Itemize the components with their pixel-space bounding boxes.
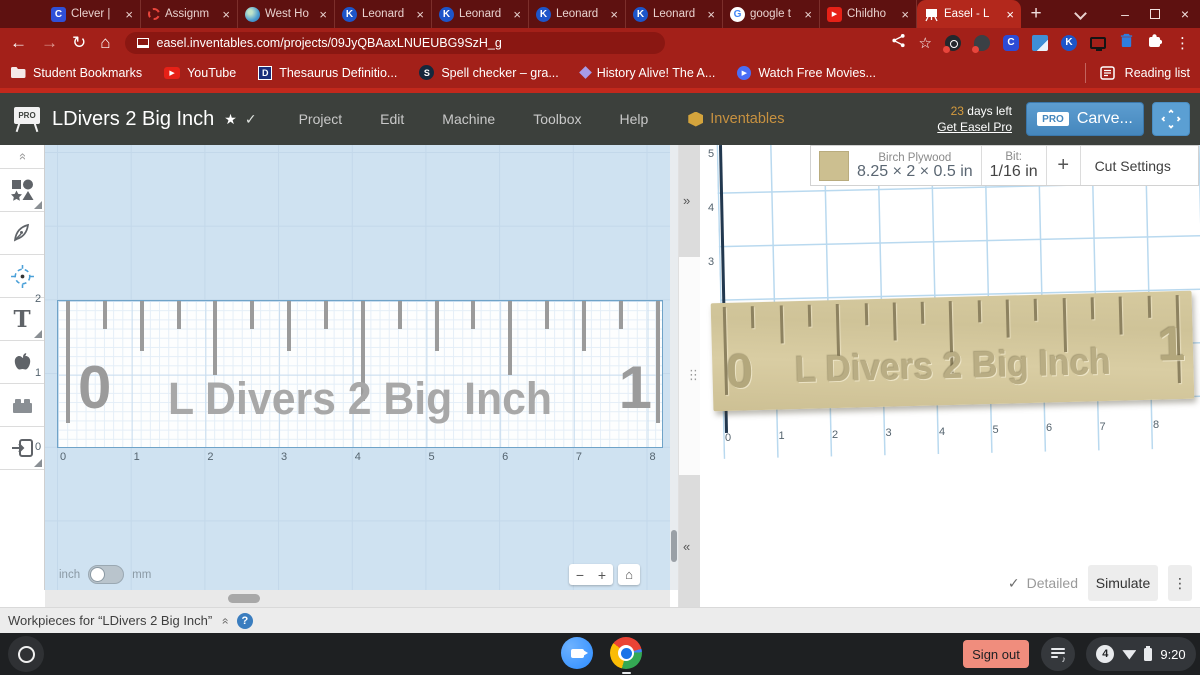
inventables-link[interactable]: Inventables: [688, 111, 784, 127]
jog-machine-button[interactable]: [1152, 102, 1190, 136]
tab-close-icon[interactable]: ×: [416, 7, 424, 22]
trial-info: 23 days left Get Easel Pro: [937, 103, 1012, 135]
reading-list-icon: [1100, 66, 1115, 80]
classroom-favicon-icon: [148, 8, 160, 20]
clever-favicon-icon: C: [51, 7, 66, 22]
tab-close-icon[interactable]: ×: [513, 7, 521, 22]
tab-assignments[interactable]: Assignm ×: [141, 0, 238, 28]
tab-label: Leonard: [653, 8, 702, 20]
tab-close-icon[interactable]: ×: [222, 7, 230, 22]
address-bar[interactable]: easel.inventables.com/projects/09JyQBAax…: [125, 32, 665, 54]
tab-label: google t: [750, 8, 799, 20]
extension-monitor-icon[interactable]: [1090, 37, 1106, 49]
bit-label: Bit:: [1005, 151, 1022, 163]
pen-icon: [11, 222, 33, 244]
project-title[interactable]: LDivers 2 Big Inch: [52, 108, 214, 131]
bookmarks-bar: Student Bookmarks ▶ YouTube D Thesaurus …: [0, 57, 1200, 88]
bookmark-history-alive[interactable]: History Alive! The A...: [581, 66, 716, 80]
inventables-logo-icon: [688, 112, 703, 127]
tab-label: Leonard: [362, 8, 411, 20]
bookmark-youtube[interactable]: ▶ YouTube: [164, 66, 236, 80]
toggle-knob: [90, 567, 105, 582]
tab-clever[interactable]: C Clever | ×: [44, 0, 141, 28]
simulate-button[interactable]: Simulate: [1088, 565, 1158, 601]
help-icon[interactable]: ?: [237, 613, 253, 629]
design-canvas[interactable]: 0 1 L Divers 2 Big Inch 012345678 210 in…: [45, 145, 670, 590]
saved-check-icon: ✓: [245, 111, 257, 128]
trial-days-suffix: days left: [964, 104, 1012, 118]
video-camera-icon: [571, 649, 584, 658]
sparkle-icon: [579, 66, 592, 79]
easel-header: PRO LDivers 2 Big Inch ★ ✓ Project Edit …: [0, 93, 1200, 145]
tab-label: Easel - L: [944, 8, 1001, 20]
text-icon: T: [13, 306, 30, 333]
thesaurus-icon: D: [258, 66, 272, 80]
bookmark-label: Student Bookmarks: [33, 66, 142, 80]
easel-favicon-icon: [924, 7, 939, 22]
url-text: easel.inventables.com/projects/09JyQBAax…: [157, 36, 502, 50]
canvas-horizontal-scrollbar[interactable]: [45, 590, 670, 607]
bookmark-label: YouTube: [187, 66, 236, 80]
get-easel-pro-link[interactable]: Get Easel Pro: [937, 120, 1012, 134]
launcher-button[interactable]: [8, 636, 44, 672]
extension-chat-icon[interactable]: [974, 35, 990, 51]
splitter-drag-handle-icon[interactable]: ⋮: [685, 367, 698, 383]
active-app-indicator: [622, 672, 631, 674]
youtube-favicon-icon: ▶: [827, 7, 842, 22]
easel-pro-logo-icon: PRO: [12, 104, 42, 134]
window-controls: – ×: [1110, 0, 1200, 28]
share-icon[interactable]: [891, 33, 906, 53]
bookmark-label: Thesaurus Definitio...: [279, 66, 397, 80]
detailed-label: Detailed: [1027, 575, 1078, 591]
extension-k-icon[interactable]: K: [1061, 35, 1077, 51]
zoom-in-button[interactable]: +: [591, 564, 613, 585]
folder-icon: [10, 66, 26, 79]
playlist-button[interactable]: ♪: [1041, 637, 1075, 671]
easel-pro-badge: PRO: [14, 107, 40, 124]
preview-panel[interactable]: 543 012345678 0 1 L Divers 2 Big Inch Bi…: [700, 145, 1200, 607]
import-icon: [11, 438, 34, 458]
material-cell[interactable]: Birch Plywood 8.25 × 2 × 0.5 in: [811, 146, 982, 185]
extension-trash-icon[interactable]: [1119, 32, 1134, 53]
bookmark-spellchecker[interactable]: S Spell checker – gra...: [419, 65, 558, 80]
k-favicon-icon: K: [536, 7, 551, 22]
tab-label: Clever |: [71, 8, 120, 20]
reload-icon[interactable]: ↻: [72, 33, 86, 53]
tab-close-icon[interactable]: ×: [901, 7, 909, 22]
unit-mm-label: mm: [132, 569, 151, 581]
material-swatch: [819, 151, 849, 181]
menu-machine[interactable]: Machine: [442, 111, 495, 127]
tab-leonard-3[interactable]: K Leonard ×: [529, 0, 626, 28]
jog-arrows-icon: [1161, 109, 1181, 129]
menu-project[interactable]: Project: [299, 111, 343, 127]
pro-badge: PRO: [1037, 112, 1069, 126]
tab-leonard-1[interactable]: K Leonard ×: [335, 0, 432, 28]
collapse-panel-icon[interactable]: «: [683, 539, 690, 554]
extension-screenshot-icon[interactable]: [1032, 35, 1048, 51]
add-bit-button[interactable]: +: [1047, 146, 1081, 185]
zoom-controls: − + ⌂: [569, 564, 640, 585]
new-tab-button[interactable]: +: [1021, 0, 1051, 28]
playlist-icon: ♪: [1051, 648, 1065, 660]
tab-west[interactable]: West Ho ×: [238, 0, 335, 28]
tab-close-icon[interactable]: ×: [707, 7, 715, 22]
workpieces-collapse-icon[interactable]: »: [218, 617, 232, 624]
carve-label: Carve...: [1077, 110, 1133, 128]
simulation-controls: ✓ Detailed Simulate ⋮: [1008, 565, 1192, 601]
extension-clever-icon[interactable]: C: [1003, 35, 1019, 51]
workpiece[interactable]: 0 1 L Divers 2 Big Inch: [57, 300, 663, 448]
menu-help[interactable]: Help: [619, 111, 648, 127]
material-dimensions: 8.25 × 2 × 0.5 in: [857, 163, 973, 180]
extension-target-icon[interactable]: [945, 35, 961, 51]
apple-icon: [11, 351, 34, 374]
screen: C Clever | × Assignm × West Ho × K Leona…: [0, 0, 1200, 675]
bookmark-student-folder[interactable]: Student Bookmarks: [10, 66, 142, 80]
trial-days: 23: [951, 104, 964, 118]
tab-leonard-2[interactable]: K Leonard ×: [432, 0, 529, 28]
extensions-puzzle-icon[interactable]: [1147, 33, 1162, 53]
spellchecker-icon: S: [419, 65, 434, 80]
play-icon: ▶: [737, 66, 751, 80]
address-toolbar: ← → ↻ ⌂ easel.inventables.com/projects/0…: [0, 28, 1200, 57]
favorite-star-icon[interactable]: ★: [224, 111, 237, 128]
google-favicon-icon: G: [730, 7, 745, 22]
tab-strip: C Clever | × Assignm × West Ho × K Leona…: [0, 0, 1200, 28]
chromeos-shelf: Sign out ♪ 4 9:20: [0, 633, 1200, 675]
notification-badge: 4: [1096, 645, 1114, 663]
tab-search-chevron-icon[interactable]: [1074, 7, 1087, 20]
shapes-icon: [10, 178, 35, 202]
menu-edit[interactable]: Edit: [380, 111, 404, 127]
tab-label: Childho: [847, 8, 896, 20]
tab-google[interactable]: G google t ×: [723, 0, 820, 28]
inventables-label: Inventables: [710, 111, 784, 127]
wifi-icon: [1122, 649, 1136, 660]
cut-settings-button[interactable]: Cut Settings: [1081, 146, 1185, 185]
crosshair-icon: [10, 264, 35, 289]
globe-favicon-icon: [245, 7, 260, 22]
zoom-home-button[interactable]: ⌂: [618, 564, 640, 585]
tab-easel-active[interactable]: Easel - L ×: [917, 0, 1021, 28]
battery-icon: [1144, 648, 1152, 661]
scrollbar-thumb[interactable]: [228, 594, 260, 603]
tab-label: Leonard: [556, 8, 605, 20]
carved-ruler-preview[interactable]: 0 1 L Divers 2 Big Inch: [711, 291, 1195, 412]
tab-leonard-4[interactable]: K Leonard ×: [626, 0, 723, 28]
workpieces-bar: Workpieces for “LDivers 2 Big Inch” » ?: [0, 607, 1200, 633]
reading-list-label: Reading list: [1125, 66, 1190, 80]
forward-icon[interactable]: →: [41, 33, 58, 53]
unit-toggle-switch[interactable]: [88, 565, 124, 584]
panel-splitter[interactable]: » ⋮ «: [678, 145, 700, 607]
k-favicon-icon: K: [439, 7, 454, 22]
check-icon: ✓: [1008, 575, 1020, 592]
menu-toolbox[interactable]: Toolbox: [533, 111, 581, 127]
canvas-vertical-scrollbar[interactable]: [670, 145, 678, 590]
tab-label: Assignm: [165, 8, 217, 20]
home-icon[interactable]: ⌂: [100, 33, 110, 53]
unit-inch-label: inch: [59, 569, 80, 581]
bookmark-label: Watch Free Movies...: [758, 66, 876, 80]
close-window-button[interactable]: ×: [1170, 6, 1200, 22]
bit-cell[interactable]: Bit: 1/16 in: [982, 146, 1047, 185]
minimize-button[interactable]: –: [1110, 6, 1140, 22]
preview-design-text: L Divers 2 Big Inch: [724, 339, 1182, 393]
tab-label: Leonard: [459, 8, 508, 20]
restore-button[interactable]: [1150, 9, 1160, 19]
carve-button[interactable]: PRO Carve...: [1026, 102, 1144, 136]
easel-menus: Project Edit Machine Toolbox Help: [299, 111, 649, 127]
bit-value: 1/16 in: [990, 163, 1038, 180]
expand-panel-icon[interactable]: »: [683, 193, 690, 208]
detailed-toggle[interactable]: ✓ Detailed: [1008, 575, 1078, 592]
site-building-icon: [137, 38, 149, 48]
tab-close-icon[interactable]: ×: [125, 7, 133, 22]
brick-icon: [11, 396, 34, 415]
tab-close-icon[interactable]: ×: [1006, 7, 1014, 22]
status-tray[interactable]: 4 9:20: [1086, 637, 1196, 671]
material-bar: Birch Plywood 8.25 × 2 × 0.5 in Bit: 1/1…: [810, 145, 1199, 186]
sign-out-button[interactable]: Sign out: [963, 640, 1029, 668]
scrollbar-thumb[interactable]: [671, 530, 677, 562]
toolbar-actions: ☆ C K ⋮: [891, 32, 1190, 53]
tab-close-icon[interactable]: ×: [804, 7, 812, 22]
tab-label: West Ho: [265, 8, 314, 20]
simulate-menu-icon[interactable]: ⋮: [1168, 565, 1192, 601]
tab-close-icon[interactable]: ×: [610, 7, 618, 22]
workpieces-label: Workpieces for “LDivers 2 Big Inch”: [8, 613, 212, 628]
canvas-x-axis: 012345678: [57, 451, 663, 465]
tab-childhood[interactable]: ▶ Childho ×: [820, 0, 917, 28]
zoom-app-icon[interactable]: [561, 637, 593, 669]
unit-toggle: inch mm: [59, 565, 151, 584]
reading-list-button[interactable]: Reading list: [1085, 63, 1190, 83]
k-favicon-icon: K: [633, 7, 648, 22]
design-text[interactable]: L Divers 2 Big Inch: [73, 373, 647, 425]
canvas-y-axis: 210: [35, 145, 49, 590]
browser-menu-icon[interactable]: ⋮: [1175, 34, 1190, 52]
zoom-out-button[interactable]: −: [569, 564, 591, 585]
bookmark-label: Spell checker – gra...: [441, 66, 558, 80]
clock: 9:20: [1160, 647, 1185, 662]
tab-close-icon[interactable]: ×: [319, 7, 327, 22]
chrome-app-icon[interactable]: [610, 637, 642, 669]
bookmark-thesaurus[interactable]: D Thesaurus Definitio...: [258, 66, 397, 80]
bookmark-label: History Alive! The A...: [597, 66, 716, 80]
youtube-icon: ▶: [164, 67, 180, 79]
k-favicon-icon: K: [342, 7, 357, 22]
bookmark-movies[interactable]: ▶ Watch Free Movies...: [737, 66, 876, 80]
bookmark-star-icon[interactable]: ☆: [919, 34, 932, 52]
back-icon[interactable]: ←: [10, 33, 27, 53]
